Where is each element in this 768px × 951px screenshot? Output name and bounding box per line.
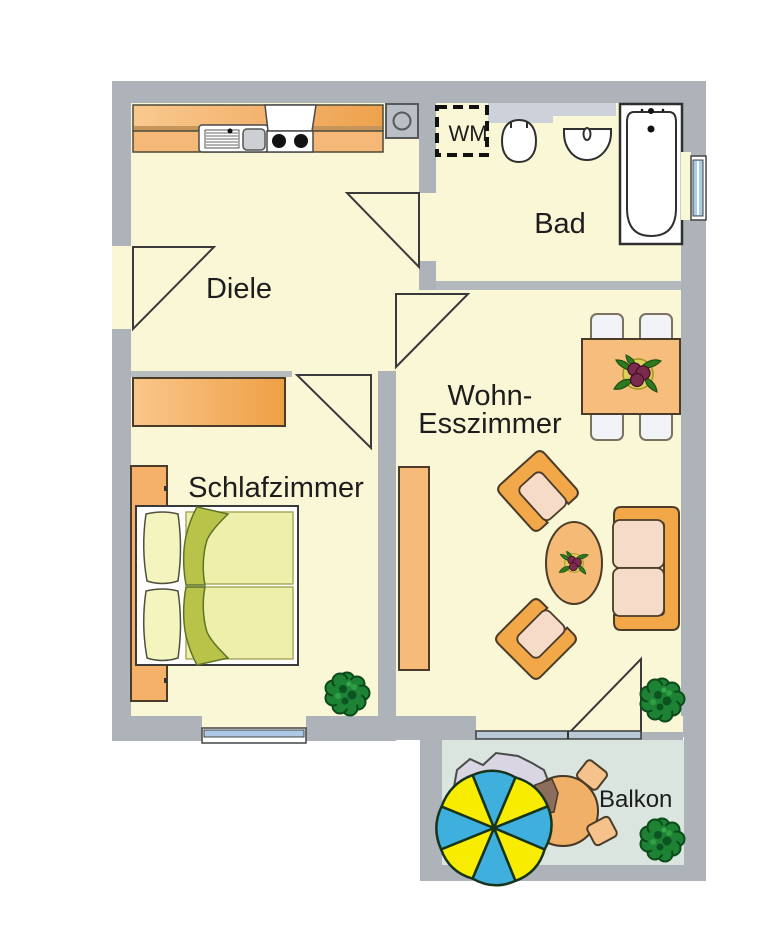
svg-text:Balkon: Balkon — [599, 786, 672, 813]
svg-text:Schlafzimmer: Schlafzimmer — [188, 472, 364, 504]
svg-text:Diele: Diele — [206, 273, 272, 305]
svg-text:Bad: Bad — [534, 208, 586, 240]
svg-text:WM: WM — [448, 121, 487, 146]
svg-text:Esszimmer: Esszimmer — [418, 408, 562, 440]
